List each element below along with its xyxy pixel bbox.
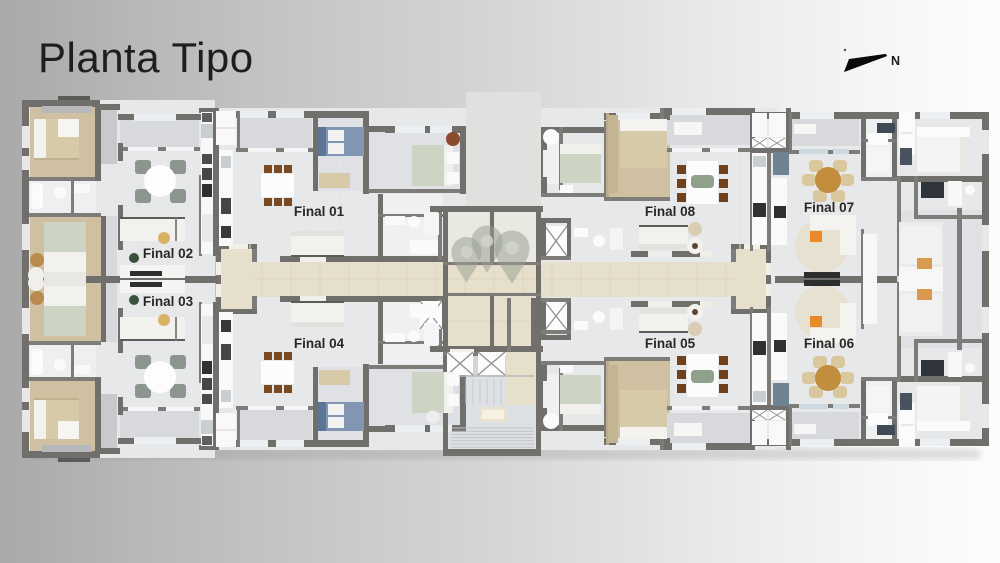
svg-text:Final 01: Final 01: [294, 204, 345, 219]
svg-text:Final 05: Final 05: [645, 336, 696, 351]
svg-text:N: N: [891, 54, 900, 68]
svg-text:Final 07: Final 07: [804, 200, 854, 215]
svg-text:Final 08: Final 08: [645, 204, 696, 219]
svg-text:Final 03: Final 03: [143, 294, 194, 309]
svg-text:Final 02: Final 02: [143, 246, 193, 261]
svg-text:Final 04: Final 04: [294, 336, 345, 351]
svg-text:Final 06: Final 06: [804, 336, 855, 351]
